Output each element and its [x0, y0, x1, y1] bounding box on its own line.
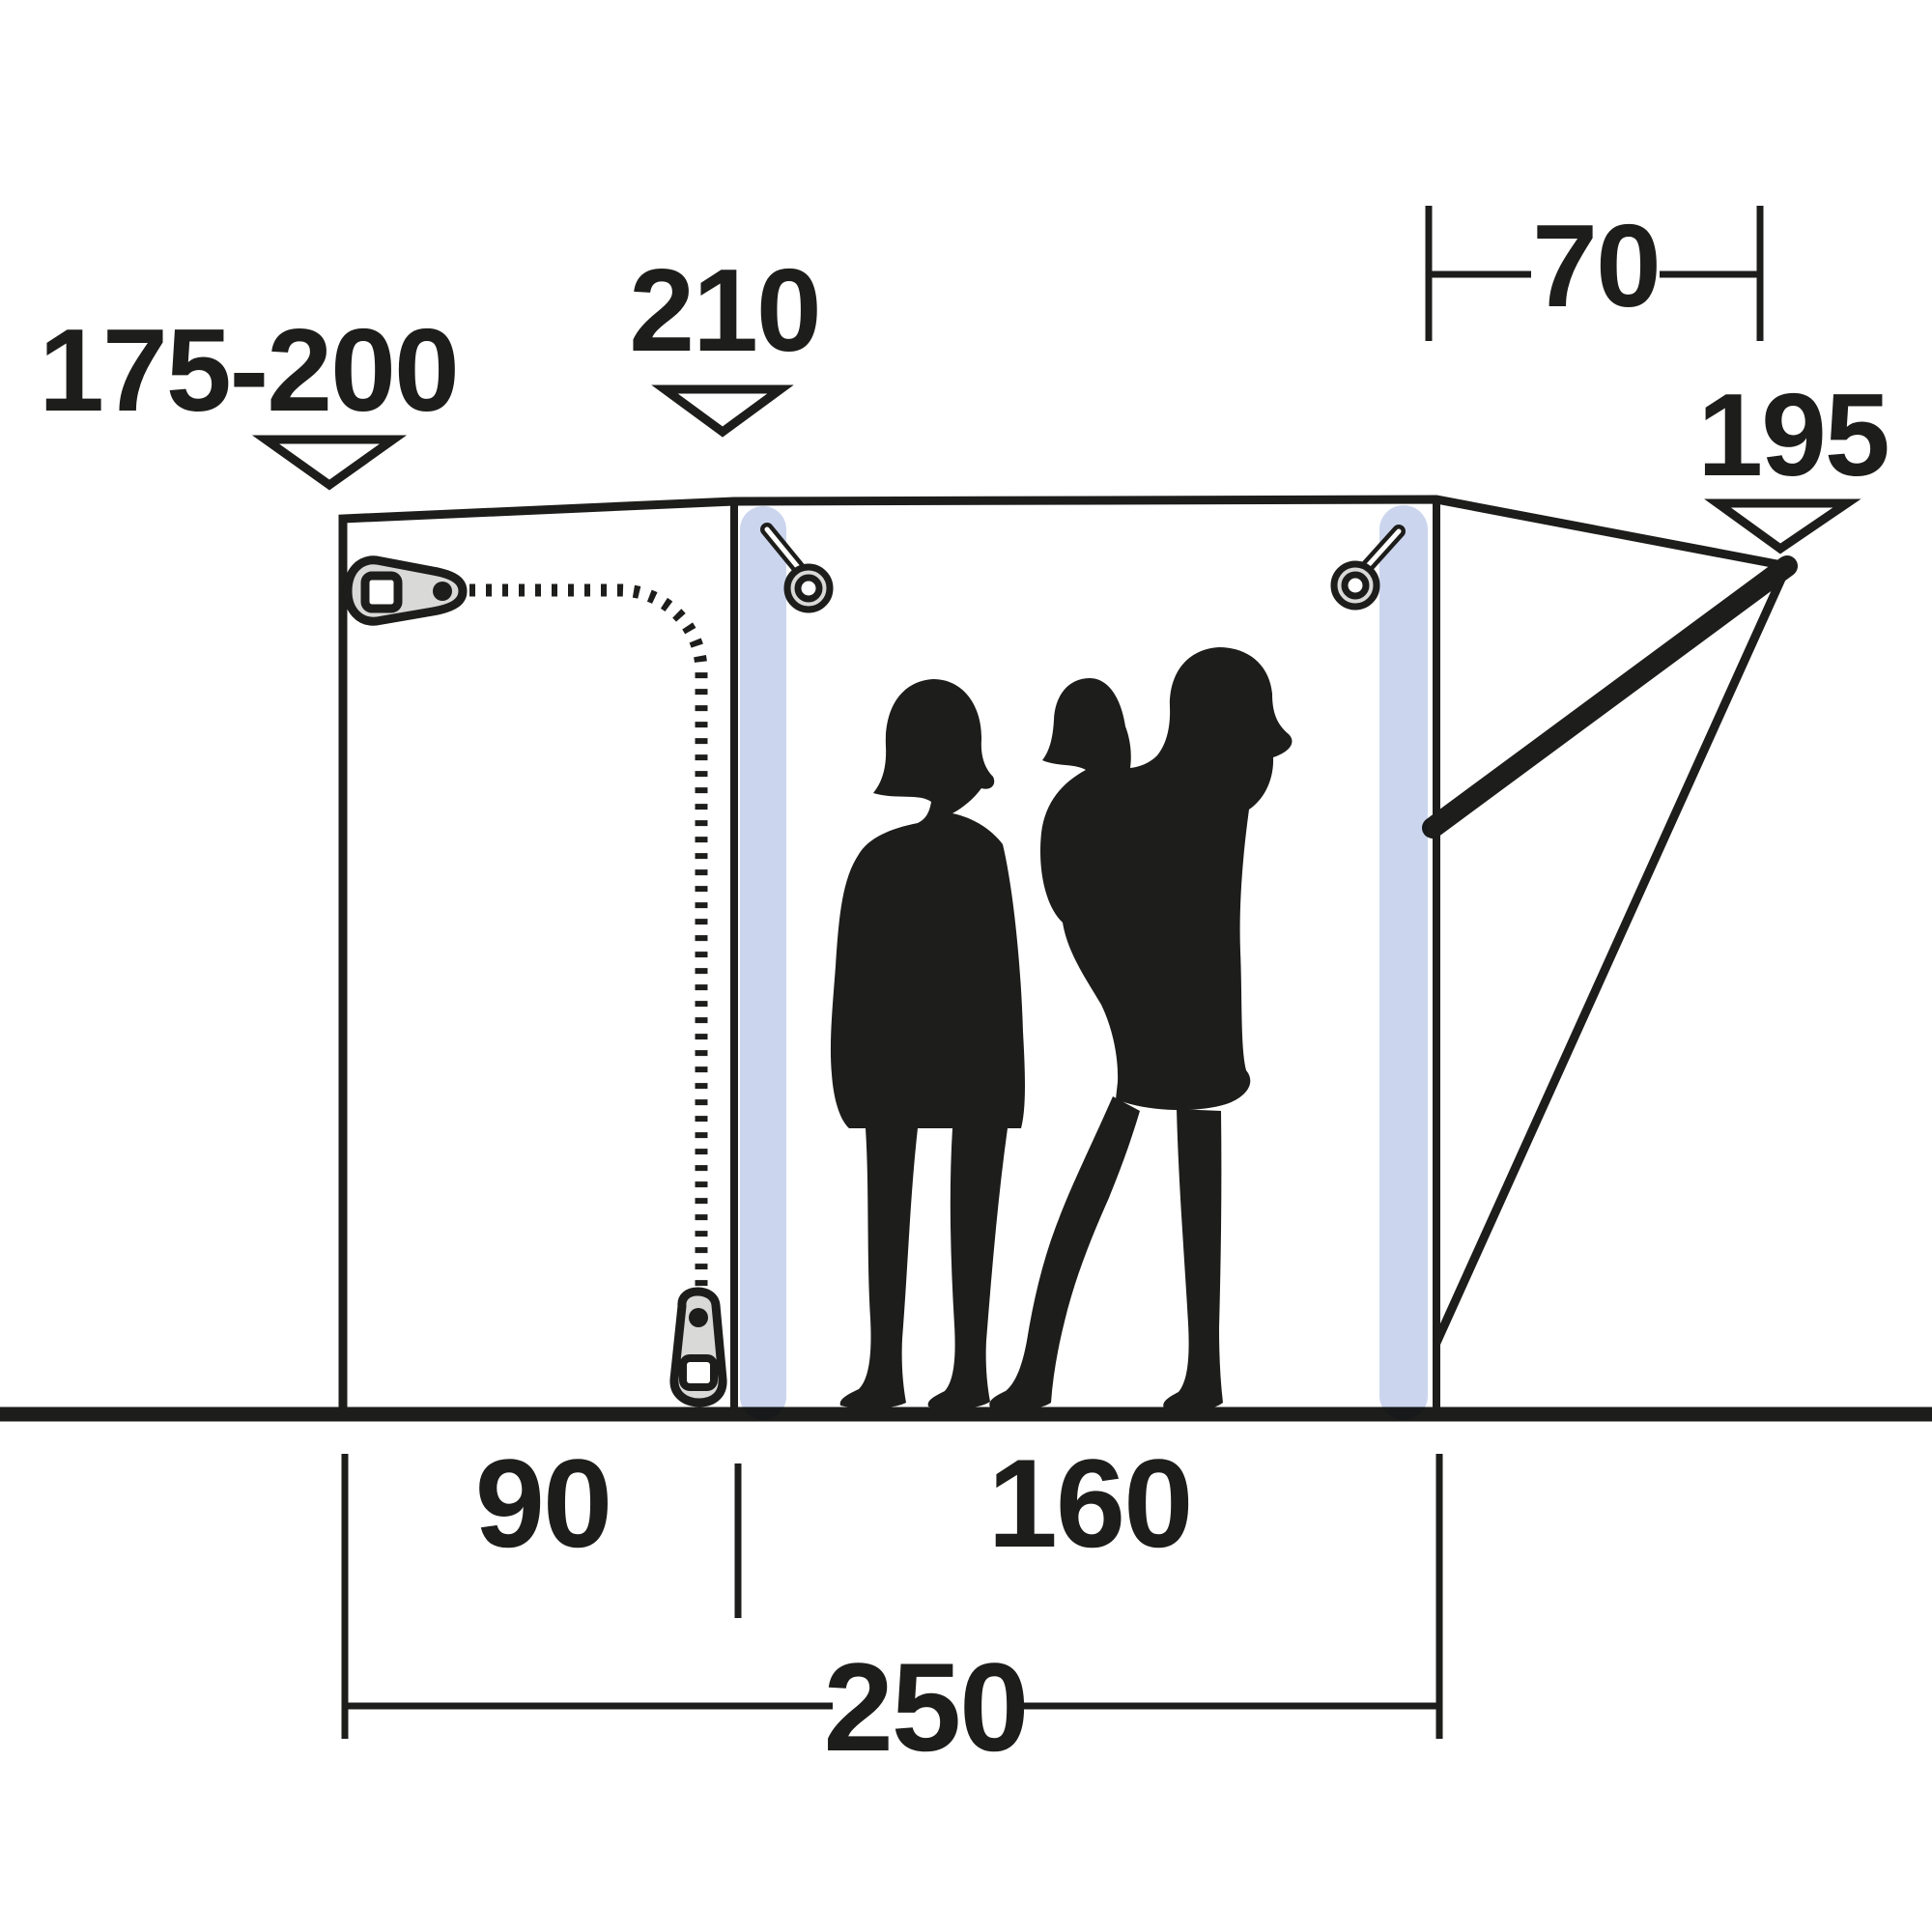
- peak-height-label: 210: [629, 244, 820, 376]
- canopy-depth-dimension: 70: [1429, 200, 1760, 341]
- zipper-teeth-dotted-line: [469, 590, 701, 1287]
- connection-height-label: 175-200: [39, 304, 458, 436]
- canopy-depth-label: 70: [1532, 200, 1660, 331]
- width-dimensions: 90 160 250: [345, 1433, 1439, 1777]
- main-width-label: 160: [988, 1433, 1192, 1574]
- canopy-support-pole: [1433, 566, 1787, 828]
- diagram-canvas: 175-200 210 70 195 90 160 250: [0, 0, 1932, 1932]
- awning-dimension-diagram: 175-200 210 70 195 90 160 250: [0, 0, 1932, 1932]
- front-width-label: 90: [475, 1433, 611, 1574]
- family-silhouette: [831, 647, 1293, 1411]
- zipper-slider-icon: [348, 560, 463, 621]
- arrow-down-triangle-icon: [266, 440, 393, 485]
- rear-height-label: 195: [1697, 369, 1889, 500]
- zipper-pull-icon: [674, 1292, 723, 1403]
- total-width-label: 250: [824, 1636, 1028, 1777]
- arrow-down-triangle-icon: [665, 389, 781, 432]
- arrow-down-triangle-icon: [1718, 503, 1847, 549]
- rear-air-pole: [1379, 505, 1428, 1420]
- front-air-pole: [740, 506, 786, 1420]
